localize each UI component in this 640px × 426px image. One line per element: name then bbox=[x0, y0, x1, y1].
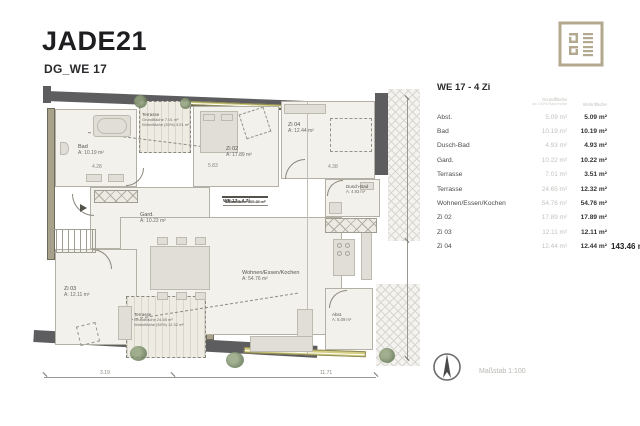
table-row: Abst. 5.09 m² 5.09 m² bbox=[437, 110, 639, 124]
dining-chair-6 bbox=[195, 292, 206, 300]
plant-terrace-bottom-1 bbox=[130, 346, 147, 361]
col-wohnflaeche-header: Wohnfläche bbox=[567, 102, 607, 107]
area-table: WE 17 - 4 Zi Grundfläche ab 100% Raumhöh… bbox=[437, 82, 639, 254]
dining-table bbox=[150, 246, 210, 290]
table-row: Zi 04 12.44 m² 12.44 m² 143.46 m² bbox=[437, 240, 639, 254]
dimension-line-bottom bbox=[44, 377, 376, 378]
cooktop-burner-2 bbox=[345, 243, 350, 248]
plant-terrace-bottom-2 bbox=[226, 352, 244, 368]
table-row: Wohnen/Essen/Kochen 54.76 m² 54.76 m² bbox=[437, 196, 639, 210]
north-compass-icon bbox=[431, 351, 463, 388]
cooktop-burner-3 bbox=[337, 251, 342, 256]
scale-label: Maßstab 1:100 bbox=[479, 368, 526, 375]
unit-subtitle: DG_WE 17 bbox=[44, 62, 107, 76]
table-row: Zi 03 12.11 m² 12.11 m² bbox=[437, 225, 639, 239]
gard-wardrobe bbox=[94, 190, 138, 203]
zi02-pillow-2 bbox=[221, 114, 233, 121]
total-area-value: 143.46 m² bbox=[607, 242, 640, 251]
floorplan-sheet: JADE21 DG_WE 17 bbox=[0, 0, 640, 426]
plan-legend-row: 4 Zimmer bbox=[223, 197, 244, 205]
dim-value-bottom-right: 11.71 bbox=[320, 370, 332, 376]
table-row: Terrasse 7.01 m² 3.51 m² bbox=[437, 168, 639, 182]
plan-legend-box: WE 17 - 4 Zi Grundfläche 159.29 m² Wohnf… bbox=[222, 196, 268, 198]
table-row: Bad 10.19 m² 10.19 m² bbox=[437, 124, 639, 138]
dusch-shower bbox=[329, 202, 342, 214]
cooktop-burner-4 bbox=[345, 251, 350, 256]
bad-sink-2 bbox=[108, 174, 124, 182]
bad-sink-1 bbox=[86, 174, 102, 182]
zi04-bed bbox=[330, 118, 372, 152]
area-table-title: WE 17 - 4 Zi bbox=[437, 82, 639, 93]
bad-door-arc bbox=[126, 168, 144, 186]
dining-chair-2 bbox=[176, 237, 187, 245]
stairwell bbox=[50, 229, 96, 253]
jade21-logo-icon bbox=[557, 20, 605, 73]
zi02-pillow-1 bbox=[203, 114, 215, 121]
plant-terrace-top-left bbox=[134, 95, 147, 108]
plant-bottom-right bbox=[379, 348, 395, 363]
dim-value-bottom-left: 3.19 bbox=[100, 370, 110, 376]
entry-arrow-icon bbox=[80, 204, 87, 212]
kitchen-tall-units bbox=[325, 218, 377, 233]
top-left-wall-stub bbox=[43, 86, 51, 103]
dimension-line-right bbox=[407, 98, 408, 360]
cooktop-burner-1 bbox=[337, 243, 342, 248]
right-exterior-wall bbox=[375, 93, 388, 175]
dim-value-right: 4.38 bbox=[328, 164, 338, 170]
dining-chair-1 bbox=[157, 237, 168, 245]
area-table-header: Grundfläche ab 100% Raumhöhe Wohnfläche bbox=[437, 97, 639, 107]
dim-value-mid: 5.83 bbox=[208, 163, 218, 169]
bathtub-inner bbox=[97, 118, 127, 134]
plant-terrace-top-right bbox=[180, 98, 191, 109]
table-row: Gard. 10.22 m² 10.22 m² bbox=[437, 153, 639, 167]
dining-chair-5 bbox=[176, 292, 187, 300]
project-title: JADE21 bbox=[42, 26, 147, 57]
dim-value-bad: 4.28 bbox=[92, 164, 102, 170]
dining-chair-3 bbox=[195, 237, 206, 245]
dining-chair-4 bbox=[157, 292, 168, 300]
kitchen-counter bbox=[361, 230, 372, 280]
floorplan-drawing: WE 17 - 4 Zi Grundfläche 159.29 m² Wohnf… bbox=[30, 84, 422, 392]
table-row: Terrasse 24.65 m² 12.32 m² bbox=[437, 182, 639, 196]
table-row: Zi 02 17.89 m² 17.89 m² bbox=[437, 211, 639, 225]
bad-toilet bbox=[60, 142, 69, 155]
sofa-horizontal bbox=[250, 336, 313, 352]
roof-hatch-top-right bbox=[388, 89, 420, 241]
zi03-wardrobe bbox=[118, 306, 132, 340]
zi04-wardrobe bbox=[284, 104, 326, 114]
col-grundflaeche-header: Grundfläche ab 100% Raumhöhe bbox=[515, 97, 567, 107]
table-row: Dusch-Bad 4.93 m² 4.93 m² bbox=[437, 139, 639, 153]
